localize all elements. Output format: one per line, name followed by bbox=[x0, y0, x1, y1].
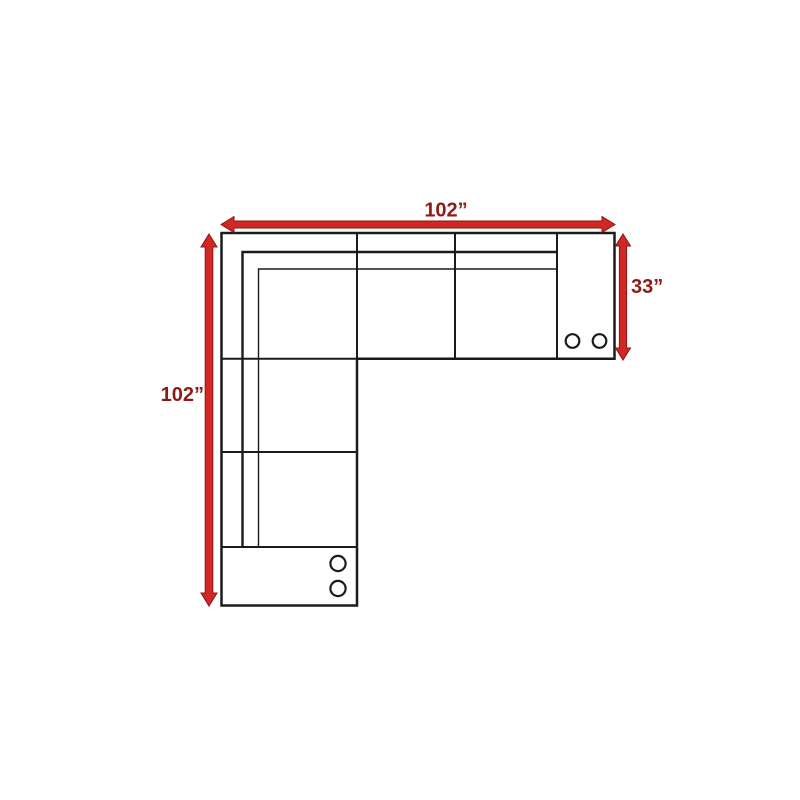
cupholder-icon bbox=[566, 334, 580, 348]
left-height-label: 102” bbox=[161, 384, 204, 406]
right-depth-label: 33” bbox=[631, 276, 663, 298]
sectional-sofa-dimension-diagram: 102” 102” 33” bbox=[0, 0, 800, 800]
cupholder-icon bbox=[330, 556, 345, 571]
cupholder-icon bbox=[330, 581, 345, 596]
diagram-canvas: 102” 102” 33” bbox=[0, 0, 800, 800]
left-dimension-arrow bbox=[201, 234, 217, 606]
cupholder-icon bbox=[593, 334, 607, 348]
right-dimension-arrow bbox=[616, 234, 631, 360]
sofa-outline bbox=[222, 233, 615, 606]
top-width-label: 102” bbox=[424, 200, 467, 222]
top-dimension-arrow bbox=[221, 217, 615, 233]
